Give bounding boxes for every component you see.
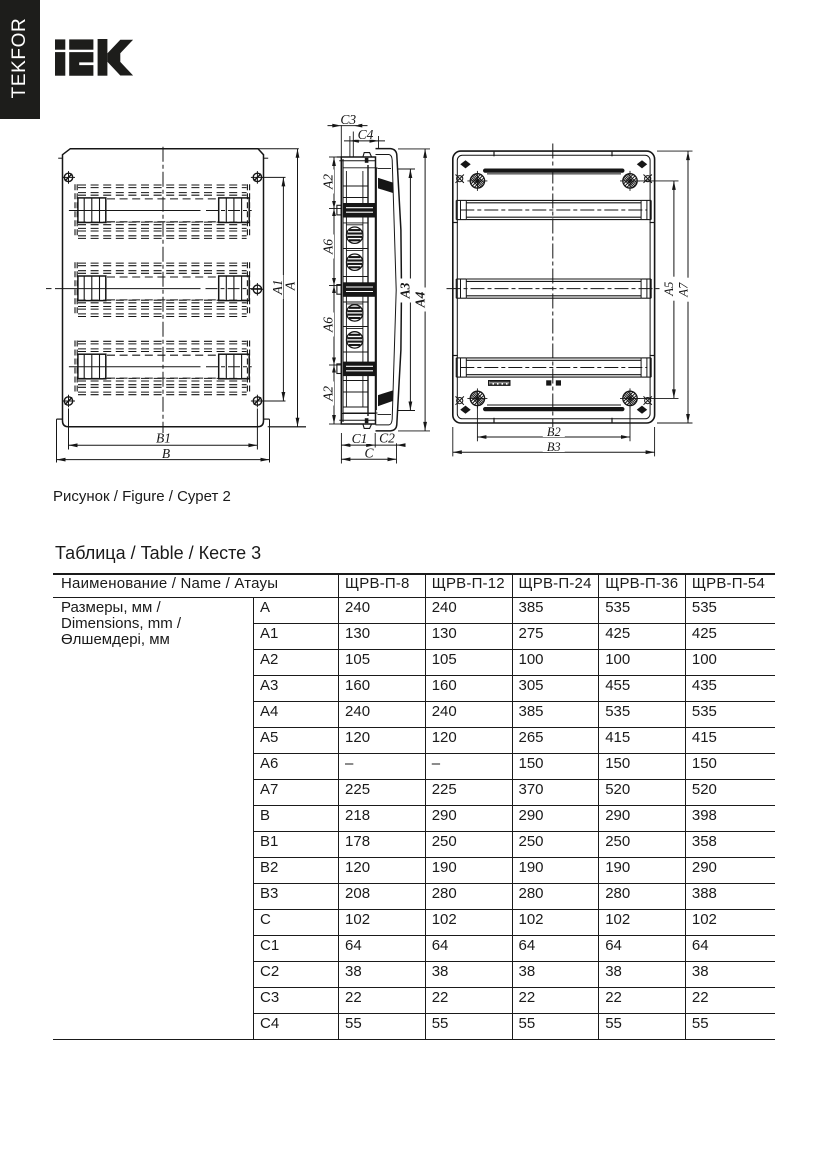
svg-text:B3: B3 bbox=[547, 440, 561, 454]
svg-text:A6: A6 bbox=[321, 317, 336, 333]
svg-text:A5: A5 bbox=[662, 282, 676, 297]
svg-text:A4: A4 bbox=[413, 291, 428, 308]
svg-text:C4: C4 bbox=[358, 127, 374, 142]
svg-text:A6: A6 bbox=[321, 239, 336, 255]
svg-text:A7: A7 bbox=[677, 282, 691, 298]
svg-text:C1: C1 bbox=[352, 431, 368, 446]
svg-text:A2: A2 bbox=[321, 174, 336, 190]
svg-text:C2: C2 bbox=[379, 430, 395, 445]
svg-text:A3: A3 bbox=[398, 282, 413, 299]
svg-text:B2: B2 bbox=[547, 425, 561, 439]
svg-text:A2: A2 bbox=[321, 386, 336, 402]
svg-text:C: C bbox=[364, 446, 374, 461]
svg-text:B1: B1 bbox=[156, 431, 171, 446]
svg-text:C3: C3 bbox=[340, 112, 356, 127]
svg-text:B: B bbox=[162, 446, 170, 461]
svg-text:A: A bbox=[283, 281, 298, 291]
